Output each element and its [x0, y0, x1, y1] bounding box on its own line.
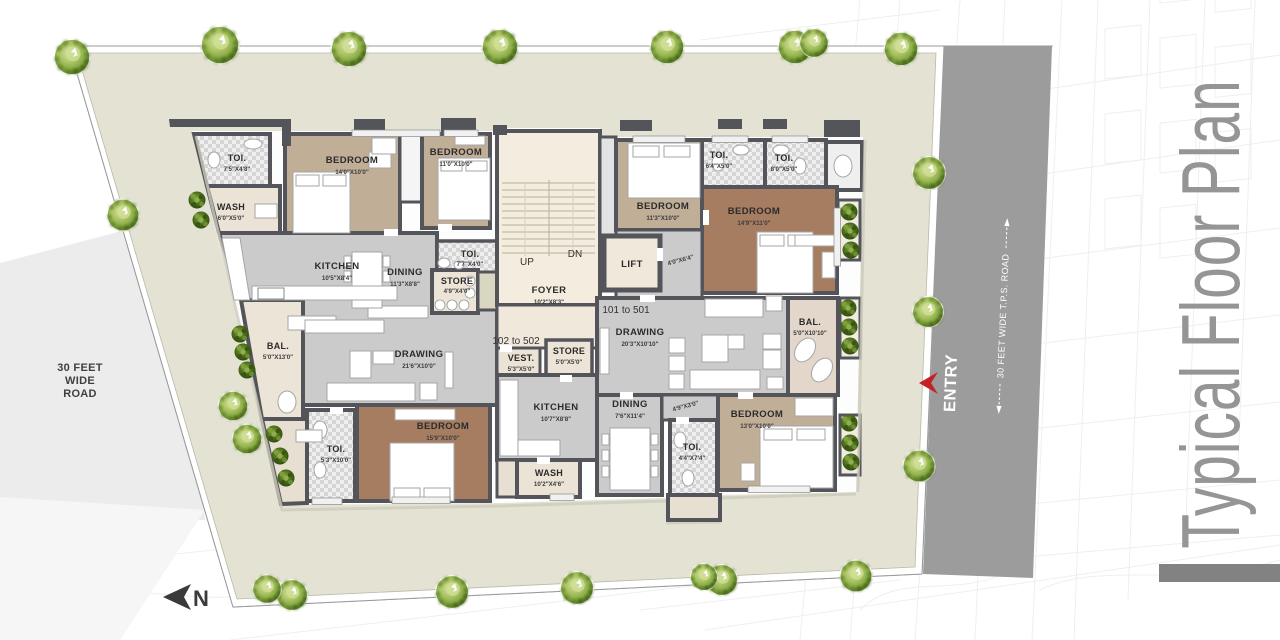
svg-text:TOI.: TOI.	[710, 150, 729, 160]
svg-text:N: N	[193, 586, 209, 611]
svg-text:FOYER: FOYER	[532, 285, 567, 296]
svg-text:Typical Floor Plan: Typical Floor Plan	[1165, 79, 1257, 548]
svg-text:BAL.: BAL.	[267, 341, 289, 351]
svg-text:10'5"X8'4": 10'5"X8'4"	[322, 275, 352, 282]
svg-text:TOI.: TOI.	[327, 444, 346, 454]
svg-text:11'3"X10'0": 11'3"X10'0"	[646, 215, 679, 222]
svg-text:BEDROOM: BEDROOM	[417, 421, 469, 432]
svg-text:7'7"X4'0": 7'7"X4'0"	[457, 261, 484, 268]
svg-text:DN: DN	[568, 249, 582, 260]
svg-text:BEDROOM: BEDROOM	[430, 147, 482, 158]
svg-text:DRAWING: DRAWING	[395, 349, 444, 360]
svg-text:15'9"X10'0": 15'9"X10'0"	[426, 435, 460, 442]
svg-text:10'7"X8'8": 10'7"X8'8"	[541, 416, 571, 423]
svg-text:KITCHEN: KITCHEN	[533, 402, 578, 413]
svg-text:TOI.: TOI.	[228, 153, 247, 163]
svg-text:5'0"X5'0": 5'0"X5'0"	[556, 359, 583, 366]
svg-text:101 to 501: 101 to 501	[602, 305, 650, 316]
svg-text:5'0"X10'10": 5'0"X10'10"	[793, 330, 827, 337]
svg-text:WIDE: WIDE	[65, 375, 95, 387]
svg-text:STORE: STORE	[441, 276, 473, 286]
svg-text:WASH: WASH	[535, 468, 563, 478]
svg-text:VEST.: VEST.	[508, 353, 535, 363]
svg-text:BEDROOM: BEDROOM	[728, 206, 780, 217]
svg-text:DINING: DINING	[387, 267, 423, 278]
svg-text:UP: UP	[520, 257, 534, 268]
svg-text:6'4"X5'0": 6'4"X5'0"	[706, 163, 733, 170]
svg-text:6'0"X5'0": 6'0"X5'0"	[218, 215, 245, 222]
svg-text:14'0"X10'0": 14'0"X10'0"	[335, 169, 369, 176]
svg-text:7'5"X4'8": 7'5"X4'8"	[224, 166, 251, 173]
svg-text:5'3"X10'0": 5'3"X10'0"	[321, 457, 351, 464]
svg-text:13'0"X10'0": 13'0"X10'0"	[740, 423, 774, 430]
svg-text:4'4"X7'4": 4'4"X7'4"	[679, 455, 706, 462]
svg-text:10'2"X4'6": 10'2"X4'6"	[534, 481, 564, 488]
svg-text:14'9"X11'0": 14'9"X11'0"	[737, 220, 770, 227]
svg-text:BEDROOM: BEDROOM	[326, 155, 378, 166]
svg-text:5'0"X13'0": 5'0"X13'0"	[263, 354, 293, 361]
svg-text:11'0"X10'0": 11'0"X10'0"	[439, 161, 472, 168]
svg-text:BEDROOM: BEDROOM	[731, 409, 783, 420]
svg-text:20'3"X10'10": 20'3"X10'10"	[621, 341, 658, 348]
svg-text:BAL.: BAL.	[799, 317, 821, 327]
svg-text:TOI.: TOI.	[461, 249, 480, 259]
svg-text:STORE: STORE	[553, 346, 585, 356]
svg-text:KITCHEN: KITCHEN	[314, 261, 359, 272]
svg-text:7'6"X11'4": 7'6"X11'4"	[615, 413, 645, 420]
svg-text:ROAD: ROAD	[63, 388, 97, 400]
svg-text:BEDROOM: BEDROOM	[637, 201, 689, 212]
svg-text:30 FEET: 30 FEET	[57, 362, 103, 374]
svg-text:11'3"X8'8": 11'3"X8'8"	[390, 281, 420, 288]
svg-text:ENTRY: ENTRY	[941, 354, 961, 412]
svg-text:TOI.: TOI.	[683, 442, 702, 452]
svg-text:8'0"X5'0": 8'0"X5'0"	[771, 166, 798, 173]
svg-text:21'6"X10'0": 21'6"X10'0"	[402, 363, 436, 370]
svg-text:WASH: WASH	[217, 202, 245, 212]
svg-text:4'9"X4'0": 4'9"X4'0"	[444, 288, 471, 295]
svg-text:DRAWING: DRAWING	[616, 327, 665, 338]
svg-text:10'2"X8'3": 10'2"X8'3"	[534, 299, 564, 306]
svg-text:LIFT: LIFT	[621, 259, 643, 270]
svg-text:5'3"X5'0": 5'3"X5'0"	[508, 366, 535, 373]
svg-text:DINING: DINING	[612, 399, 648, 410]
svg-text:102 to 502: 102 to 502	[492, 336, 540, 347]
svg-text:TOI.: TOI.	[775, 153, 794, 163]
